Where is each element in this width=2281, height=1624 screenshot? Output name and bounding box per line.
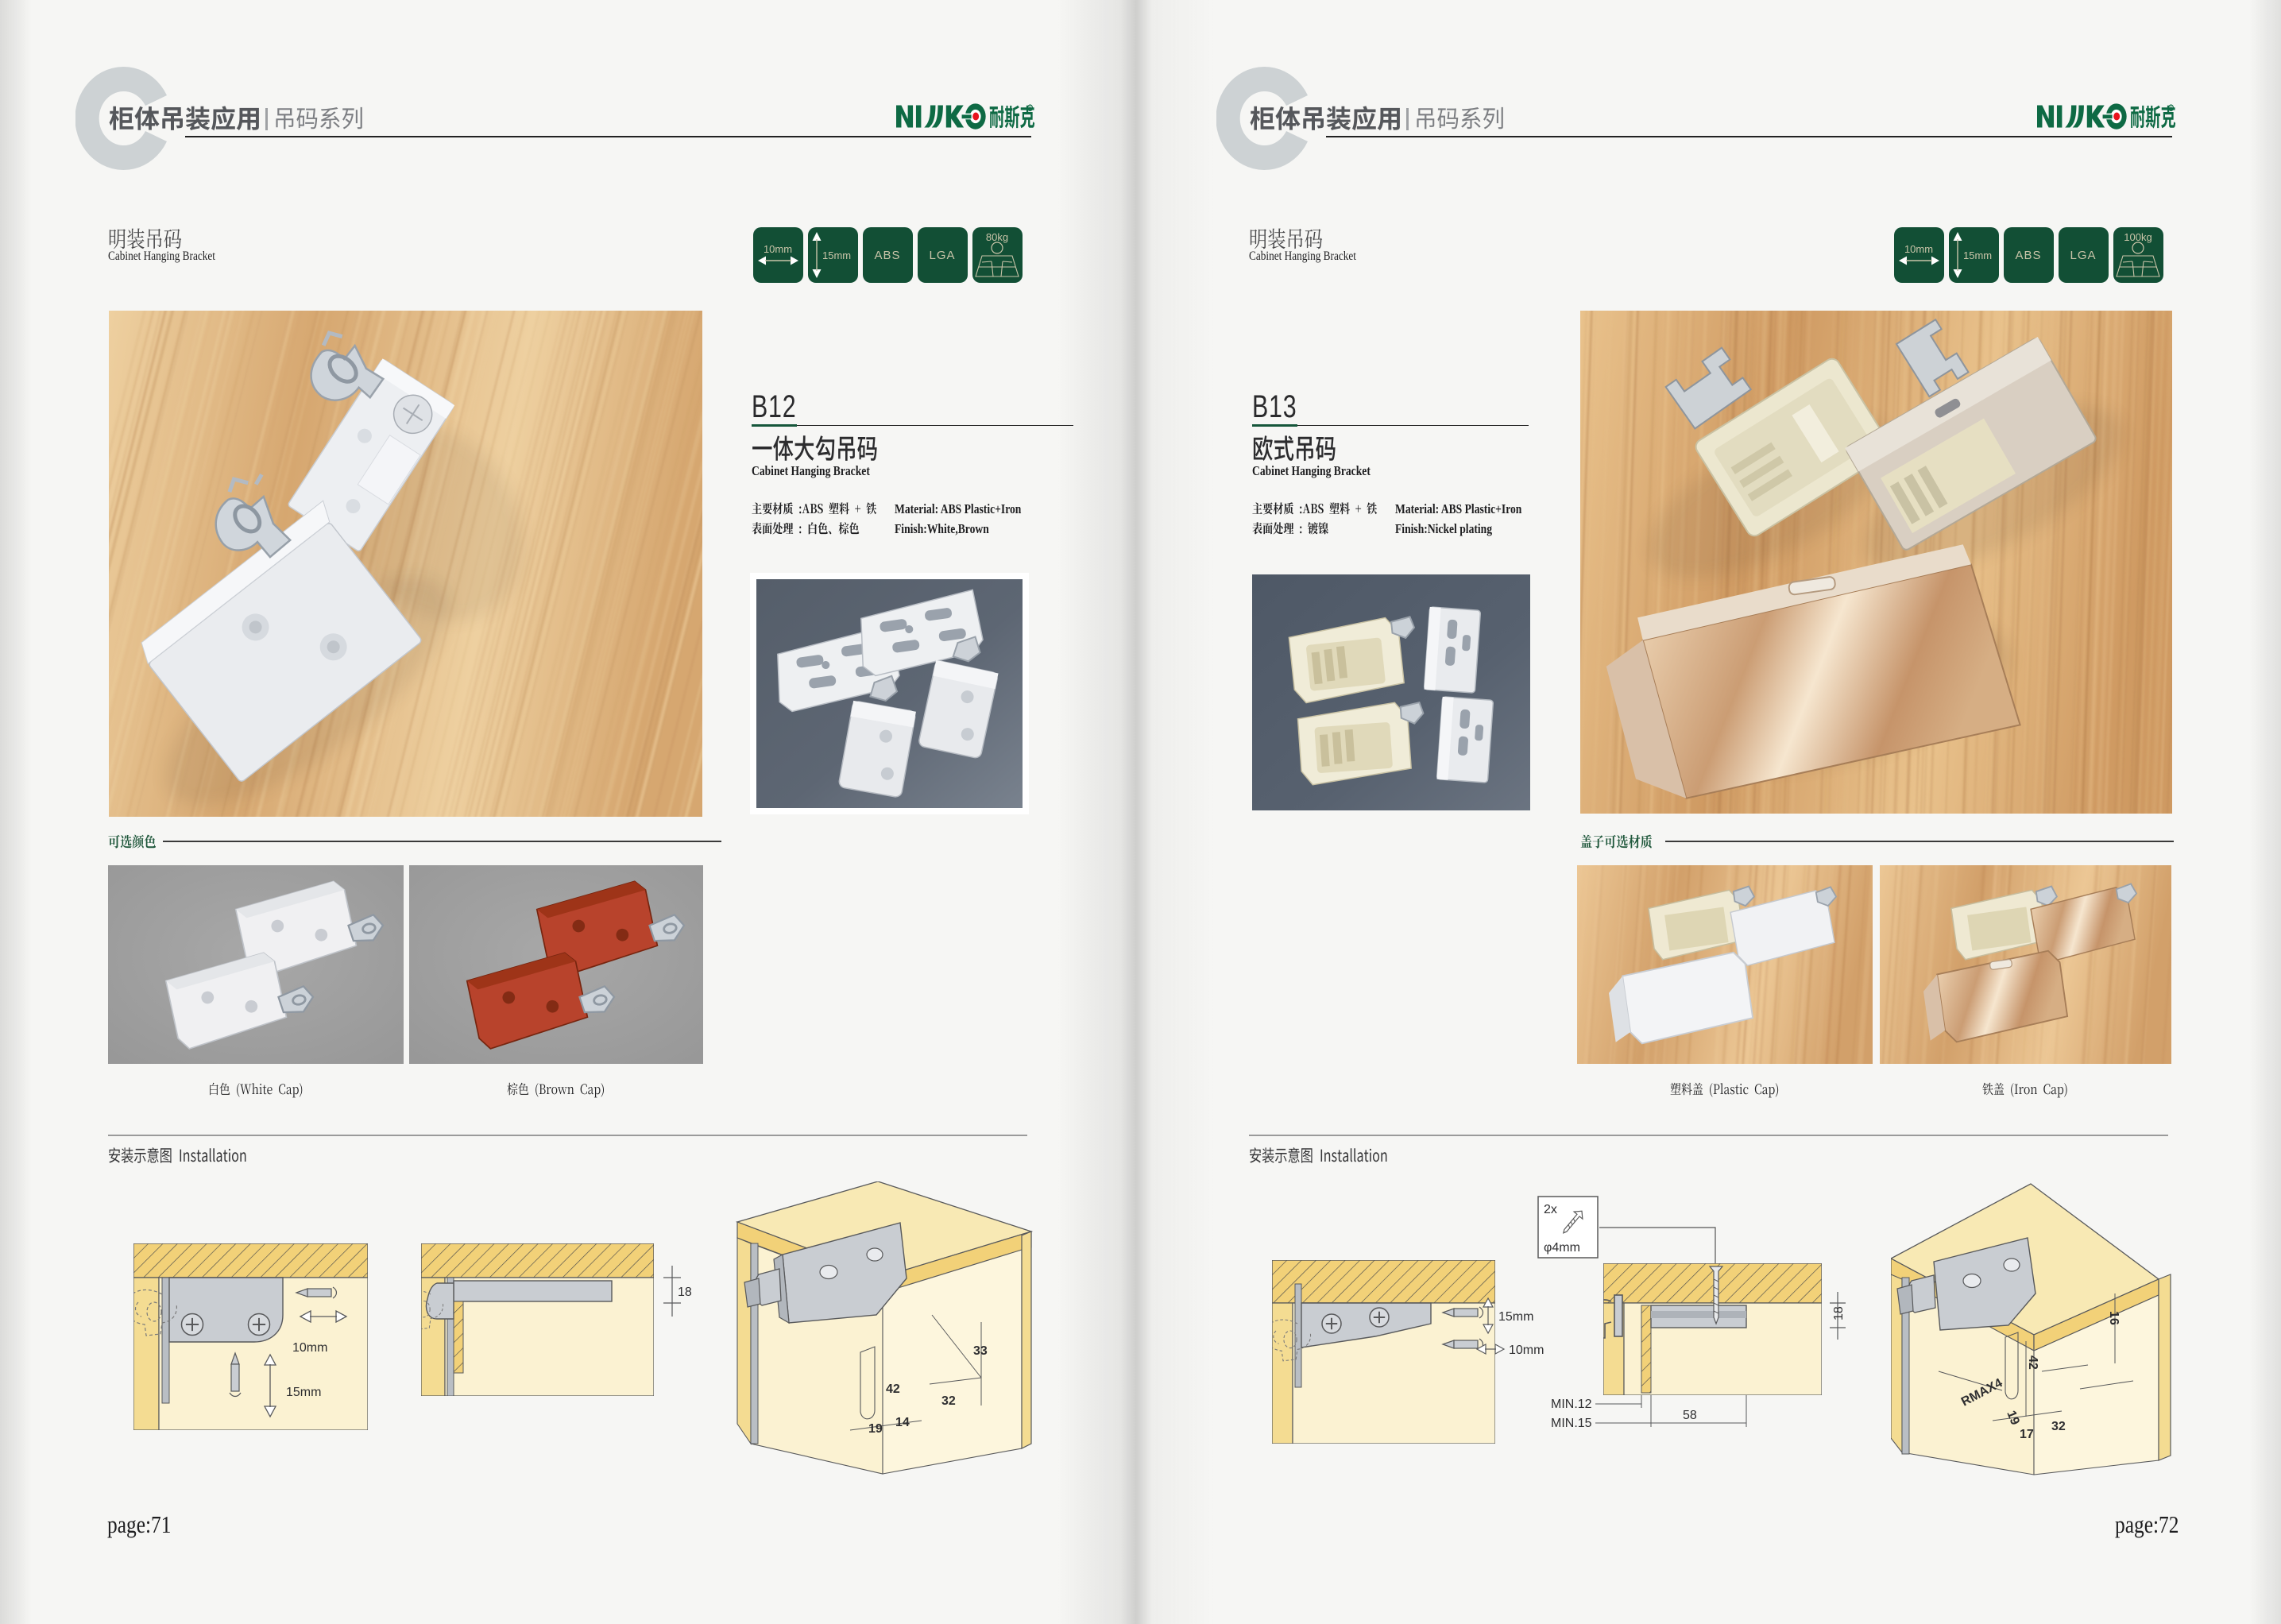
svg-text:32: 32 — [2051, 1420, 2066, 1433]
svg-text:MIN.12: MIN.12 — [1551, 1398, 1592, 1411]
svg-text:18: 18 — [1832, 1306, 1846, 1320]
svg-text:16: 16 — [2107, 1311, 2121, 1325]
svg-text:42: 42 — [2026, 1355, 2039, 1370]
svg-text:MIN.15: MIN.15 — [1551, 1417, 1592, 1430]
svg-text:58: 58 — [1683, 1409, 1697, 1422]
svg-text:17: 17 — [2020, 1428, 2034, 1441]
